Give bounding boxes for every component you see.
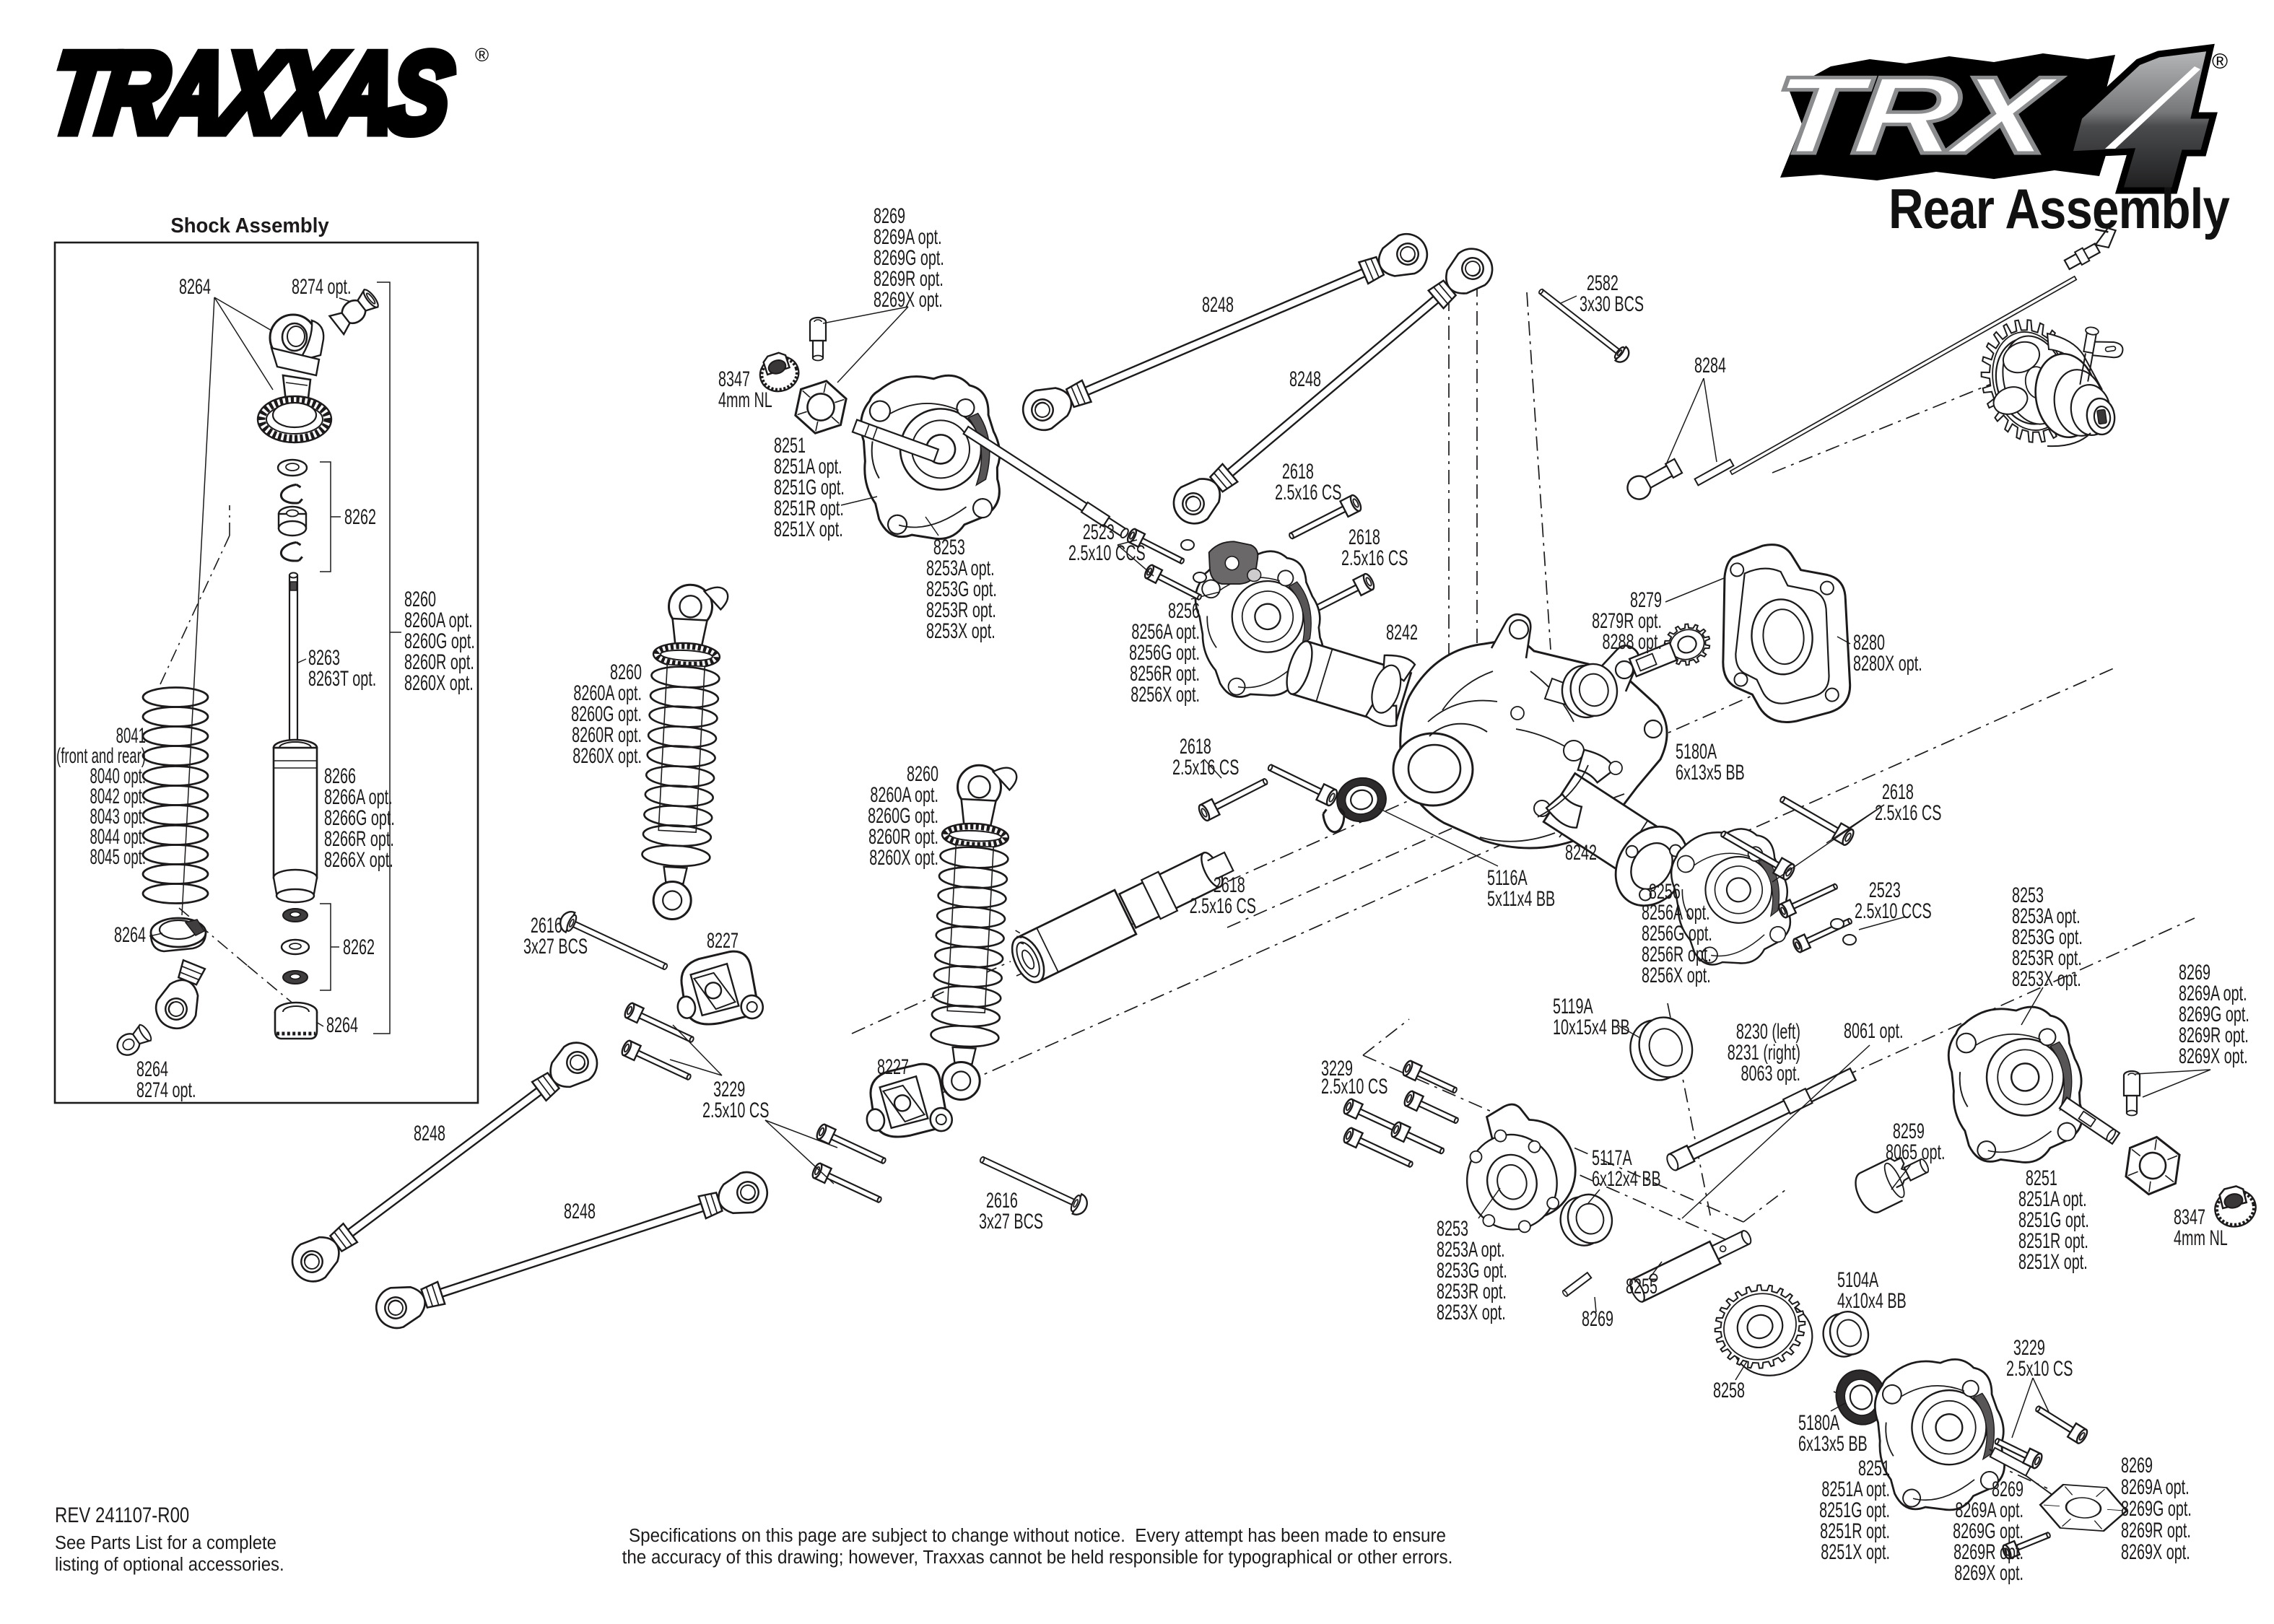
svg-text:8242: 8242 <box>1386 621 1418 645</box>
svg-text:8227: 8227 <box>707 929 739 953</box>
svg-text:8255: 8255 <box>1626 1275 1657 1298</box>
svg-text:TRAXXAS: TRAXXAS <box>43 29 459 157</box>
svg-text:8258: 8258 <box>1713 1379 1745 1402</box>
svg-text:®: ® <box>2212 50 2228 74</box>
svg-text:Rear Assembly: Rear Assembly <box>1889 177 2230 240</box>
svg-text:8248: 8248 <box>564 1200 596 1223</box>
svg-text:8264: 8264 <box>326 1013 358 1037</box>
svg-text:8284: 8284 <box>1694 354 1726 377</box>
svg-text:Shock Assembly: Shock Assembly <box>170 213 329 237</box>
svg-text:8061 opt.: 8061 opt. <box>1844 1019 1904 1043</box>
svg-text:Specifications on this page ar: Specifications on this page are subject … <box>629 1525 1446 1546</box>
svg-text:8248: 8248 <box>1202 293 1234 317</box>
svg-text:8264: 8264 <box>114 923 146 947</box>
svg-text:8274 opt.: 8274 opt. <box>292 275 352 299</box>
svg-text:8248: 8248 <box>414 1122 445 1145</box>
svg-text:See Parts List for a completel: See Parts List for a completelisting of … <box>55 1532 284 1575</box>
svg-text:8264: 8264 <box>179 275 211 299</box>
svg-text:8269: 8269 <box>1582 1307 1613 1331</box>
svg-text:8242: 8242 <box>1565 841 1597 865</box>
svg-text:8262: 8262 <box>344 505 376 529</box>
svg-text:TRX: TRX <box>1764 54 2065 177</box>
svg-text:8262: 8262 <box>343 935 375 959</box>
svg-text:the accuracy of this drawing;: the accuracy of this drawing; however, T… <box>622 1547 1453 1568</box>
svg-text:8248: 8248 <box>1289 367 1321 391</box>
svg-text:8227: 8227 <box>877 1055 909 1079</box>
svg-text:REV 241107-R00: REV 241107-R00 <box>55 1502 189 1527</box>
svg-text:®: ® <box>475 44 489 66</box>
